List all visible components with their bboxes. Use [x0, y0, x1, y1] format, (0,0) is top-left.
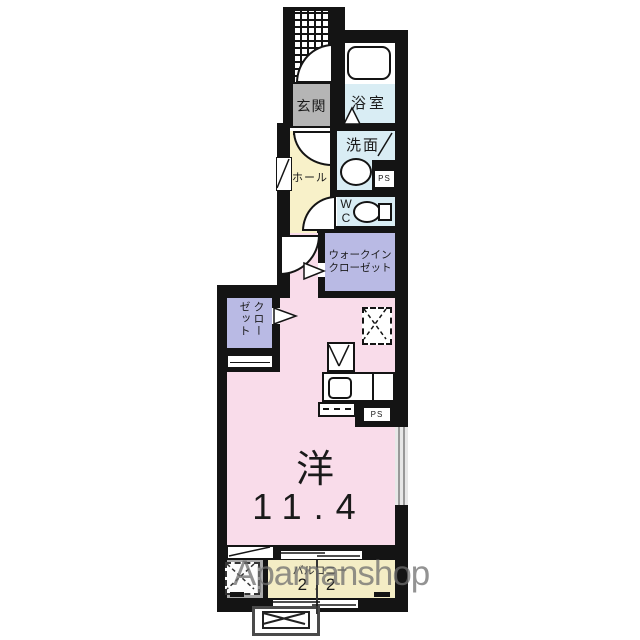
wall	[330, 190, 408, 197]
ps-box-lower: PS	[363, 407, 391, 422]
kitchen-counter-edge	[318, 402, 356, 417]
range-hood-box	[327, 342, 355, 372]
wic-label-line2: クローゼット	[325, 260, 395, 275]
wall	[272, 298, 280, 308]
floor-plan: PS PS 玄関 浴室 洗面 W C ホール ウォークイン クローゼット	[0, 0, 640, 640]
genkan-label: 玄関	[293, 96, 330, 116]
wall	[283, 7, 293, 128]
room-size-label: 11.4	[230, 486, 390, 528]
watermark: Apamanshop	[233, 554, 429, 594]
wall	[217, 285, 290, 298]
kitchen-sink	[328, 377, 352, 399]
room-type-label: 洋	[280, 438, 350, 493]
closet-low-window	[227, 355, 273, 368]
wc-label-c: C	[339, 211, 353, 225]
toilet-bowl	[353, 201, 381, 223]
ps-box-upper: PS	[374, 170, 395, 188]
right-wall-window	[395, 427, 408, 505]
dashed-line	[323, 408, 351, 410]
window-line	[403, 427, 405, 505]
wall	[395, 30, 408, 612]
washbasin	[340, 158, 372, 186]
bathtub	[347, 46, 391, 80]
washroom-label: 洗面	[337, 134, 389, 155]
refrigerator-space	[362, 307, 392, 345]
kitchen-counter	[322, 372, 395, 402]
bath-label: 浴室	[343, 92, 395, 113]
wall	[318, 291, 395, 298]
outdoor-step-inner	[262, 611, 310, 629]
wall	[330, 123, 408, 131]
hall-label: ホール	[288, 169, 332, 185]
window-line	[398, 427, 400, 505]
toilet-tank	[378, 203, 392, 221]
closet-label: クローゼット	[237, 301, 265, 347]
wc-label-w: W	[339, 197, 353, 211]
window-line	[230, 362, 270, 363]
counter-divider	[372, 374, 374, 400]
